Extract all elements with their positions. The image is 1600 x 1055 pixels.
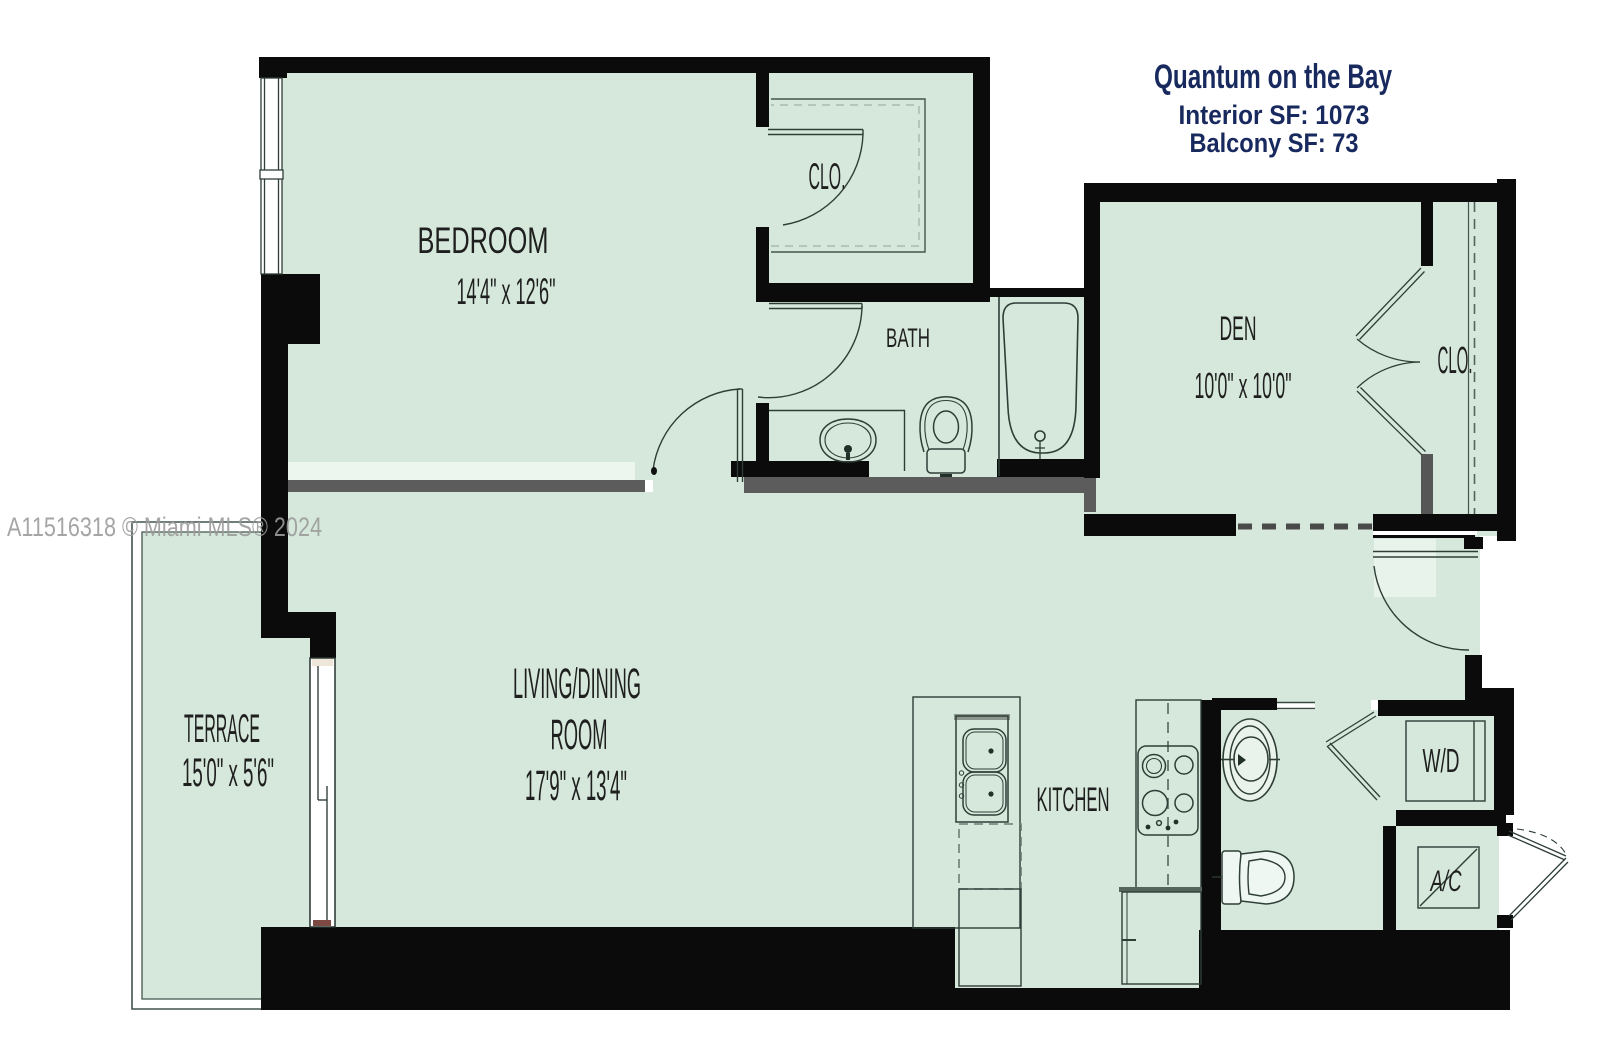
svg-text:KITCHEN: KITCHEN (1037, 781, 1110, 819)
svg-text:ROOM: ROOM (551, 711, 608, 759)
svg-text:Balcony SF: 73: Balcony SF: 73 (1190, 128, 1359, 158)
svg-text:17'9" x 13'4": 17'9" x 13'4" (525, 762, 627, 810)
svg-text:BATH: BATH (886, 323, 930, 353)
svg-text:CLO.: CLO. (1438, 340, 1473, 382)
svg-text:Interior SF: 1073: Interior SF: 1073 (1179, 100, 1370, 130)
svg-text:DEN: DEN (1220, 310, 1257, 348)
svg-text:BEDROOM: BEDROOM (418, 220, 549, 261)
svg-text:Quantum on the Bay: Quantum on the Bay (1154, 58, 1392, 96)
svg-text:A/C: A/C (1429, 865, 1461, 898)
svg-text:TERRACE: TERRACE (184, 707, 260, 751)
svg-text:15'0" x 5'6": 15'0" x 5'6" (182, 751, 274, 795)
svg-text:LIVING/DINING: LIVING/DINING (513, 660, 641, 708)
svg-text:CLO.: CLO. (809, 156, 846, 197)
svg-text:14'4" x 12'6": 14'4" x 12'6" (457, 271, 556, 312)
svg-text:10'0" x 10'0": 10'0" x 10'0" (1195, 365, 1292, 406)
svg-text:W/D: W/D (1423, 742, 1460, 779)
svg-text:A11516318 © Miami MLS® 2024: A11516318 © Miami MLS® 2024 (7, 512, 322, 542)
